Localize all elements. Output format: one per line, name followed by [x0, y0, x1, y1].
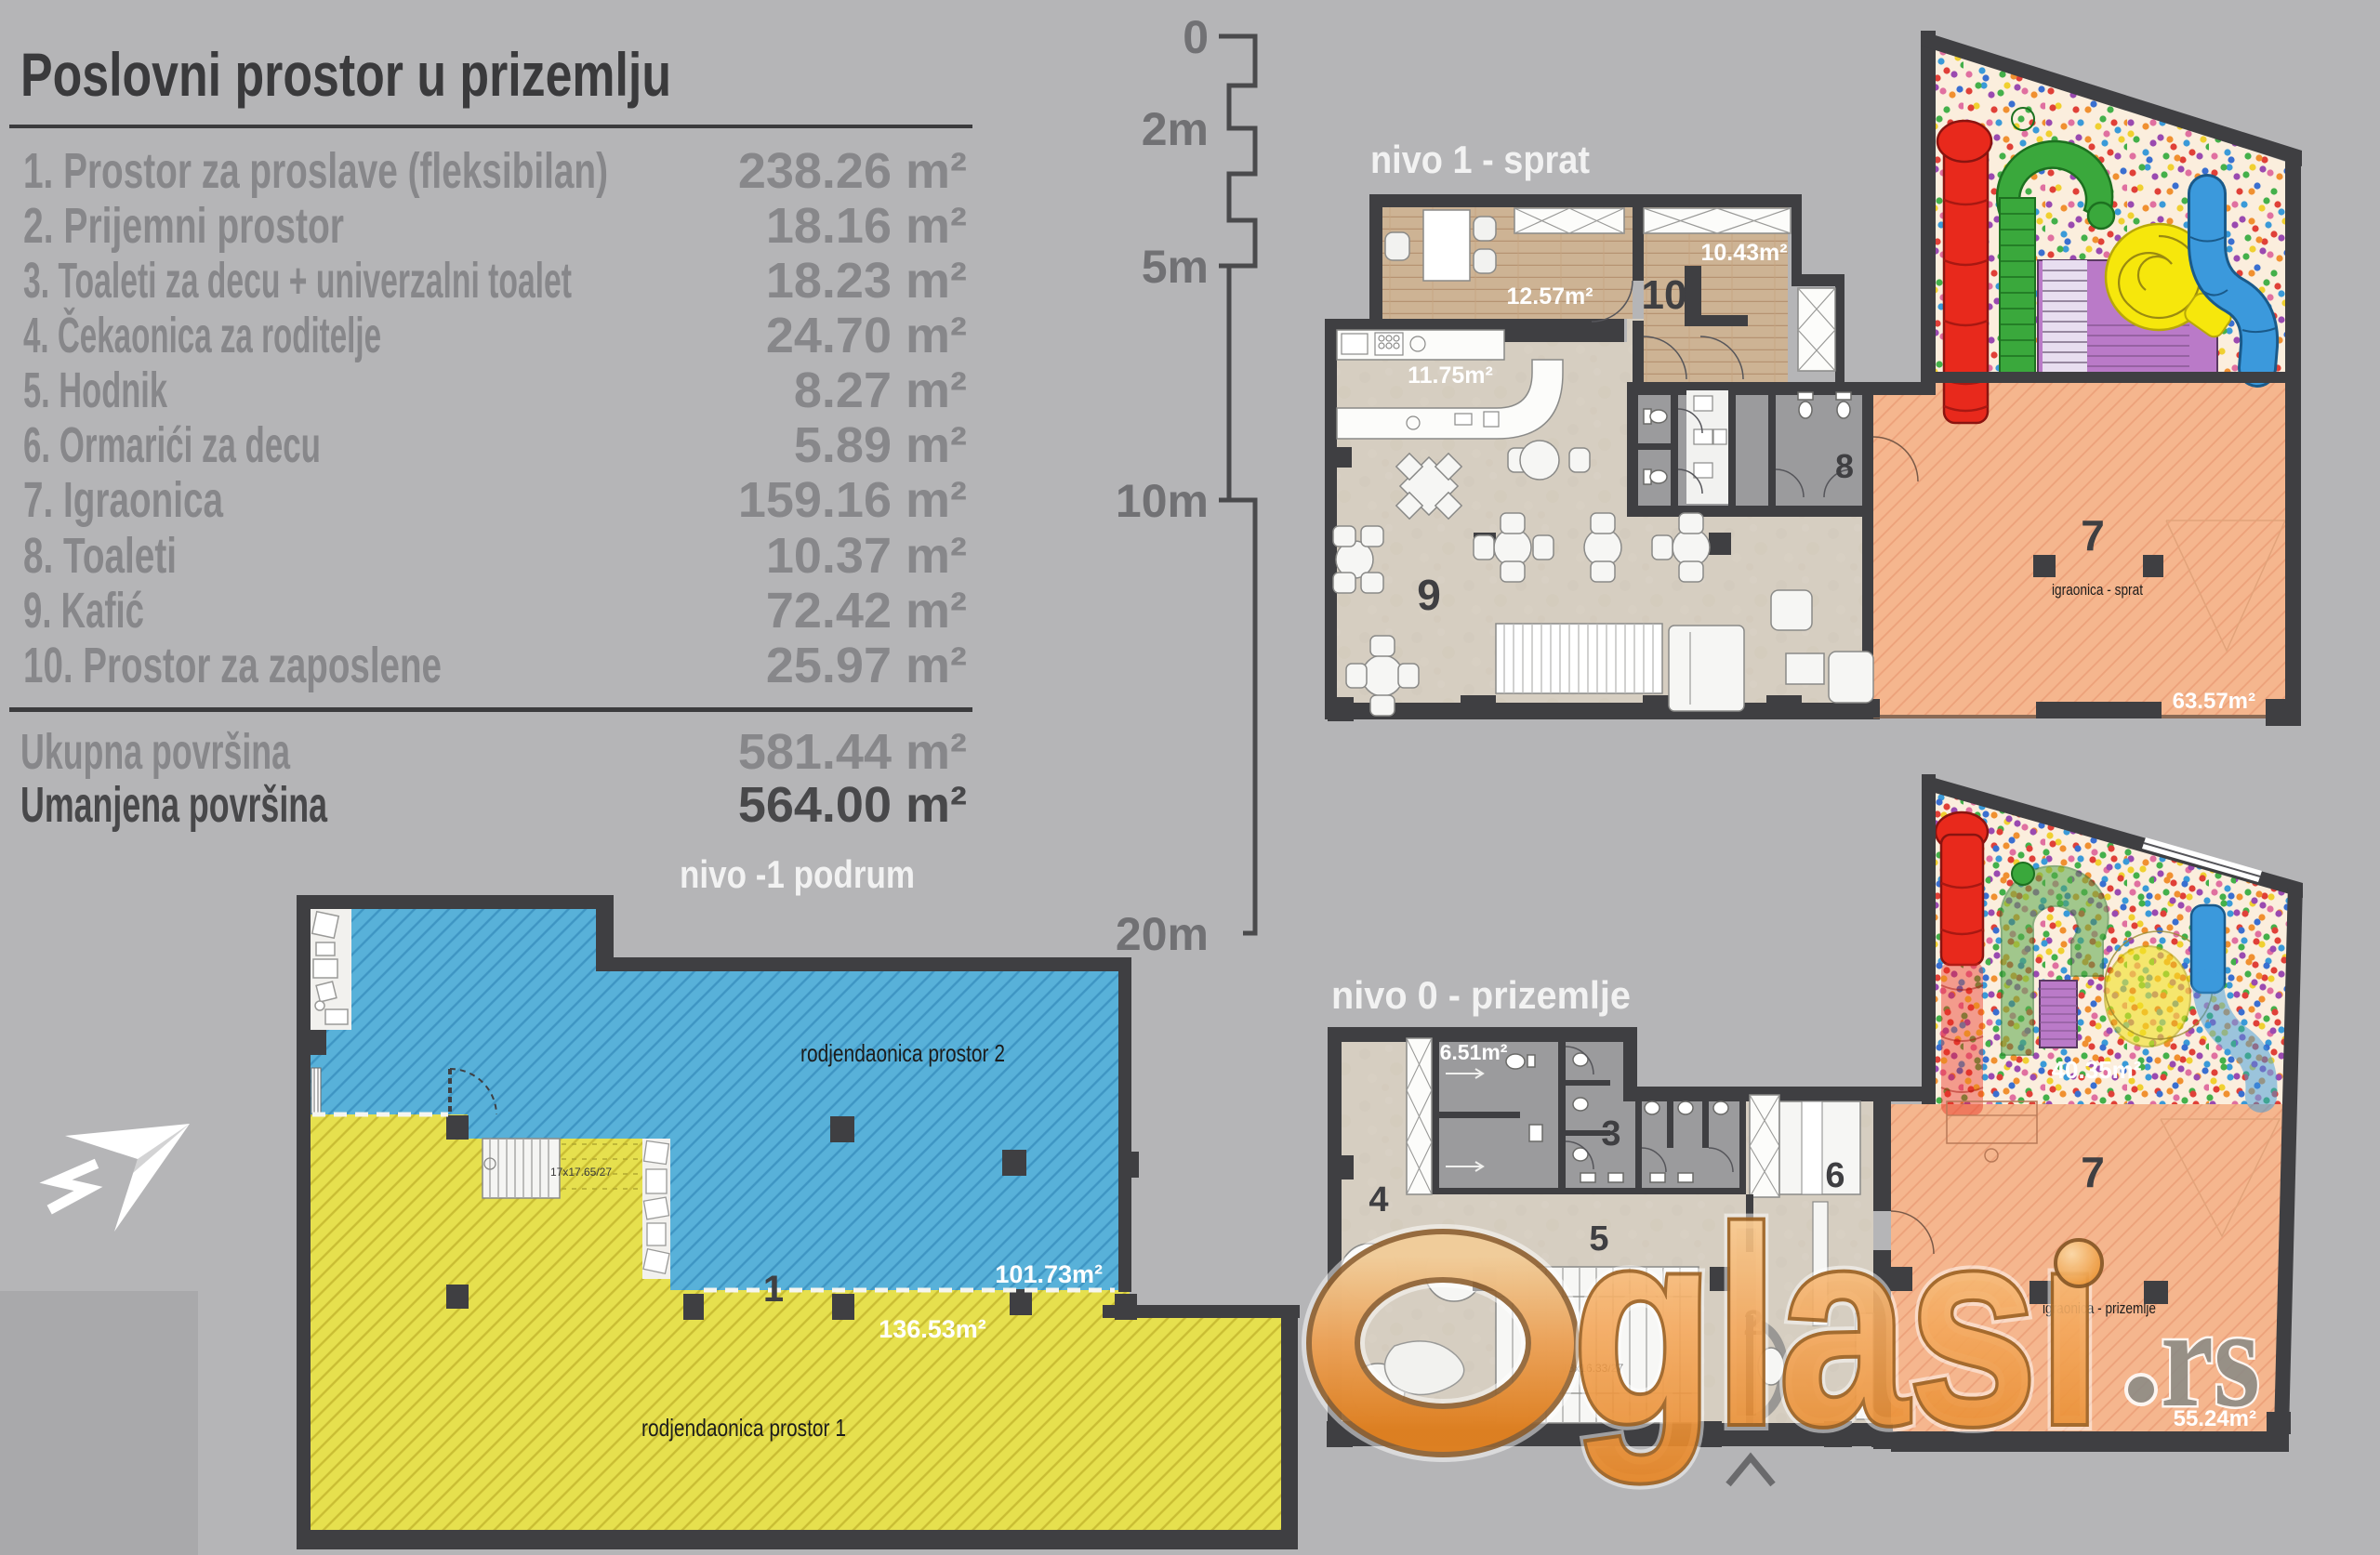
- svg-text:10. Prostor za zaposlene: 10. Prostor za zaposlene: [23, 638, 442, 693]
- svg-text:8. Toaleti: 8. Toaleti: [23, 528, 177, 584]
- svg-text:6. Ormarići za decu: 6. Ormarići za decu: [23, 417, 321, 473]
- svg-text:6.51m²: 6.51m²: [1440, 1040, 1508, 1064]
- svg-text:159.16 m²: 159.16 m²: [738, 472, 967, 528]
- svg-text:Ukupna površina: Ukupna površina: [20, 724, 291, 780]
- svg-text:24.70 m²: 24.70 m²: [766, 308, 967, 363]
- svg-text:rodjendaonica prostor 1: rodjendaonica prostor 1: [641, 1414, 846, 1442]
- svg-text:10.37 m²: 10.37 m²: [766, 528, 967, 584]
- svg-text:0: 0: [1183, 11, 1209, 63]
- svg-text:glası: glası: [1572, 1170, 2102, 1484]
- svg-text:3. Toaleti za decu + univerzal: 3. Toaleti za decu + univerzalni toalet: [23, 253, 572, 309]
- svg-text:1: 1: [763, 1269, 784, 1310]
- svg-text:20m: 20m: [1116, 908, 1209, 960]
- svg-text:3: 3: [1601, 1114, 1620, 1153]
- svg-text:10: 10: [1642, 272, 1687, 318]
- svg-text:8.27 m²: 8.27 m²: [794, 362, 967, 418]
- svg-text:Poslovni prostor u prizemlju: Poslovni prostor u prizemlju: [20, 40, 671, 109]
- svg-text:igraonica - sprat: igraonica - sprat: [2052, 581, 2143, 599]
- svg-text:581.44 m²: 581.44 m²: [738, 724, 967, 780]
- svg-text:40.35m²: 40.35m²: [2052, 1056, 2142, 1084]
- svg-text:2m: 2m: [1142, 103, 1209, 155]
- svg-text:101.73m²: 101.73m²: [995, 1260, 1103, 1288]
- svg-text:nivo 1 - sprat: nivo 1 - sprat: [1370, 138, 1590, 181]
- svg-text:8: 8: [1835, 447, 1854, 485]
- svg-text:9. Kafić: 9. Kafić: [23, 583, 144, 639]
- svg-text:18.23 m²: 18.23 m²: [766, 253, 967, 309]
- svg-text:rs: rs: [2161, 1280, 2260, 1436]
- svg-text:136.53m²: 136.53m²: [879, 1315, 986, 1343]
- svg-text:11.75m²: 11.75m²: [1408, 362, 1493, 389]
- svg-text:rodjendaonica prostor 2: rodjendaonica prostor 2: [800, 1039, 1005, 1067]
- svg-text:4. Čekaonica za roditelje: 4. Čekaonica za roditelje: [23, 307, 381, 363]
- svg-text:18.16 m²: 18.16 m²: [766, 198, 967, 254]
- svg-text:10m: 10m: [1116, 475, 1209, 527]
- svg-text:238.26 m²: 238.26 m²: [738, 143, 967, 199]
- svg-text:72.42 m²: 72.42 m²: [766, 583, 967, 639]
- svg-text:nivo 0 - prizemlje: nivo 0 - prizemlje: [1331, 973, 1631, 1017]
- svg-text:25.97 m²: 25.97 m²: [766, 638, 967, 693]
- svg-text:12.57m²: 12.57m²: [1506, 283, 1593, 310]
- svg-text:2. Prijemni prostor: 2. Prijemni prostor: [23, 198, 344, 254]
- svg-text:7. Igraonica: 7. Igraonica: [23, 472, 224, 528]
- svg-text:5. Hodnik: 5. Hodnik: [23, 362, 168, 418]
- svg-text:17x17.65/27: 17x17.65/27: [550, 1166, 612, 1179]
- svg-text:Umanjena površina: Umanjena površina: [20, 777, 328, 833]
- svg-text:9: 9: [1417, 571, 1441, 619]
- svg-text:7: 7: [2081, 511, 2105, 560]
- svg-text:10.43m²: 10.43m²: [1700, 240, 1787, 266]
- svg-text:4: 4: [1368, 1180, 1388, 1219]
- svg-text:5m: 5m: [1142, 241, 1209, 293]
- svg-text:63.57m²: 63.57m²: [2173, 689, 2255, 714]
- svg-text:5.89 m²: 5.89 m²: [794, 417, 967, 473]
- svg-text:1. Prostor za proslave (fleksi: 1. Prostor za proslave (fleksibilan): [23, 143, 608, 199]
- svg-text:564.00 m²: 564.00 m²: [738, 777, 967, 833]
- svg-text:nivo -1 podrum: nivo -1 podrum: [680, 852, 915, 896]
